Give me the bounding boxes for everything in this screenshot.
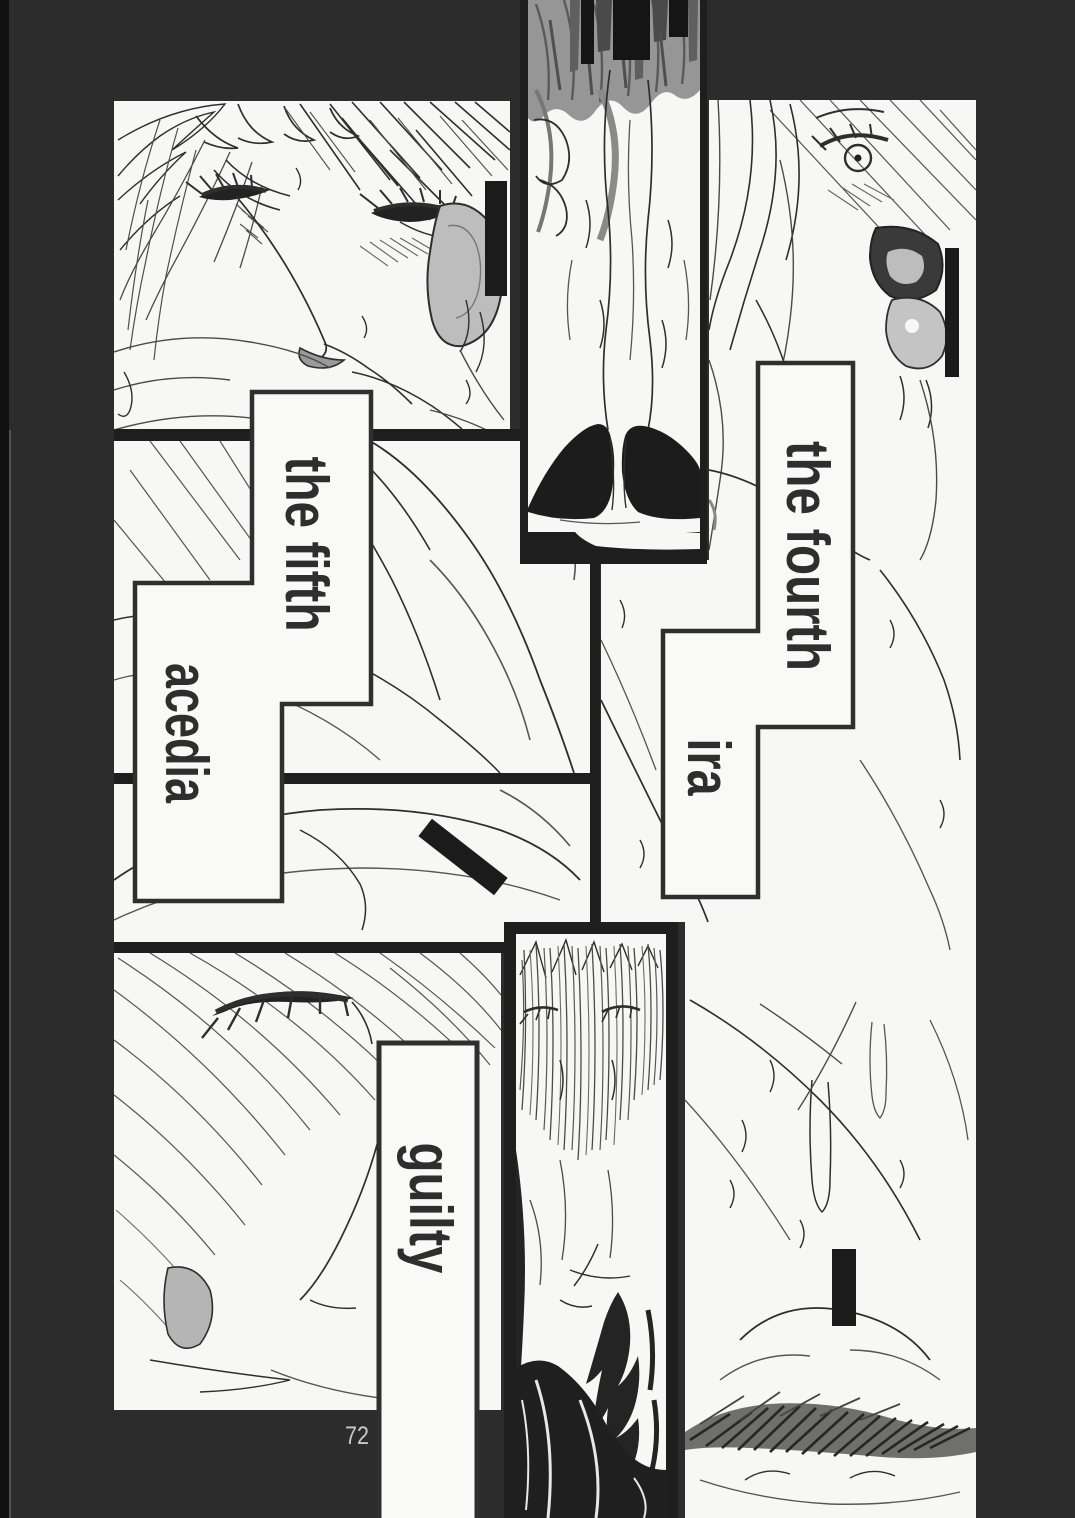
svg-text:ira: ira [675, 739, 742, 796]
svg-text:guilty: guilty [397, 1143, 464, 1275]
svg-text:acedia: acedia [153, 663, 220, 803]
svg-text:the fourth: the fourth [774, 441, 841, 671]
svg-text:72: 72 [345, 1422, 369, 1450]
svg-text:the fifth: the fifth [273, 457, 340, 632]
